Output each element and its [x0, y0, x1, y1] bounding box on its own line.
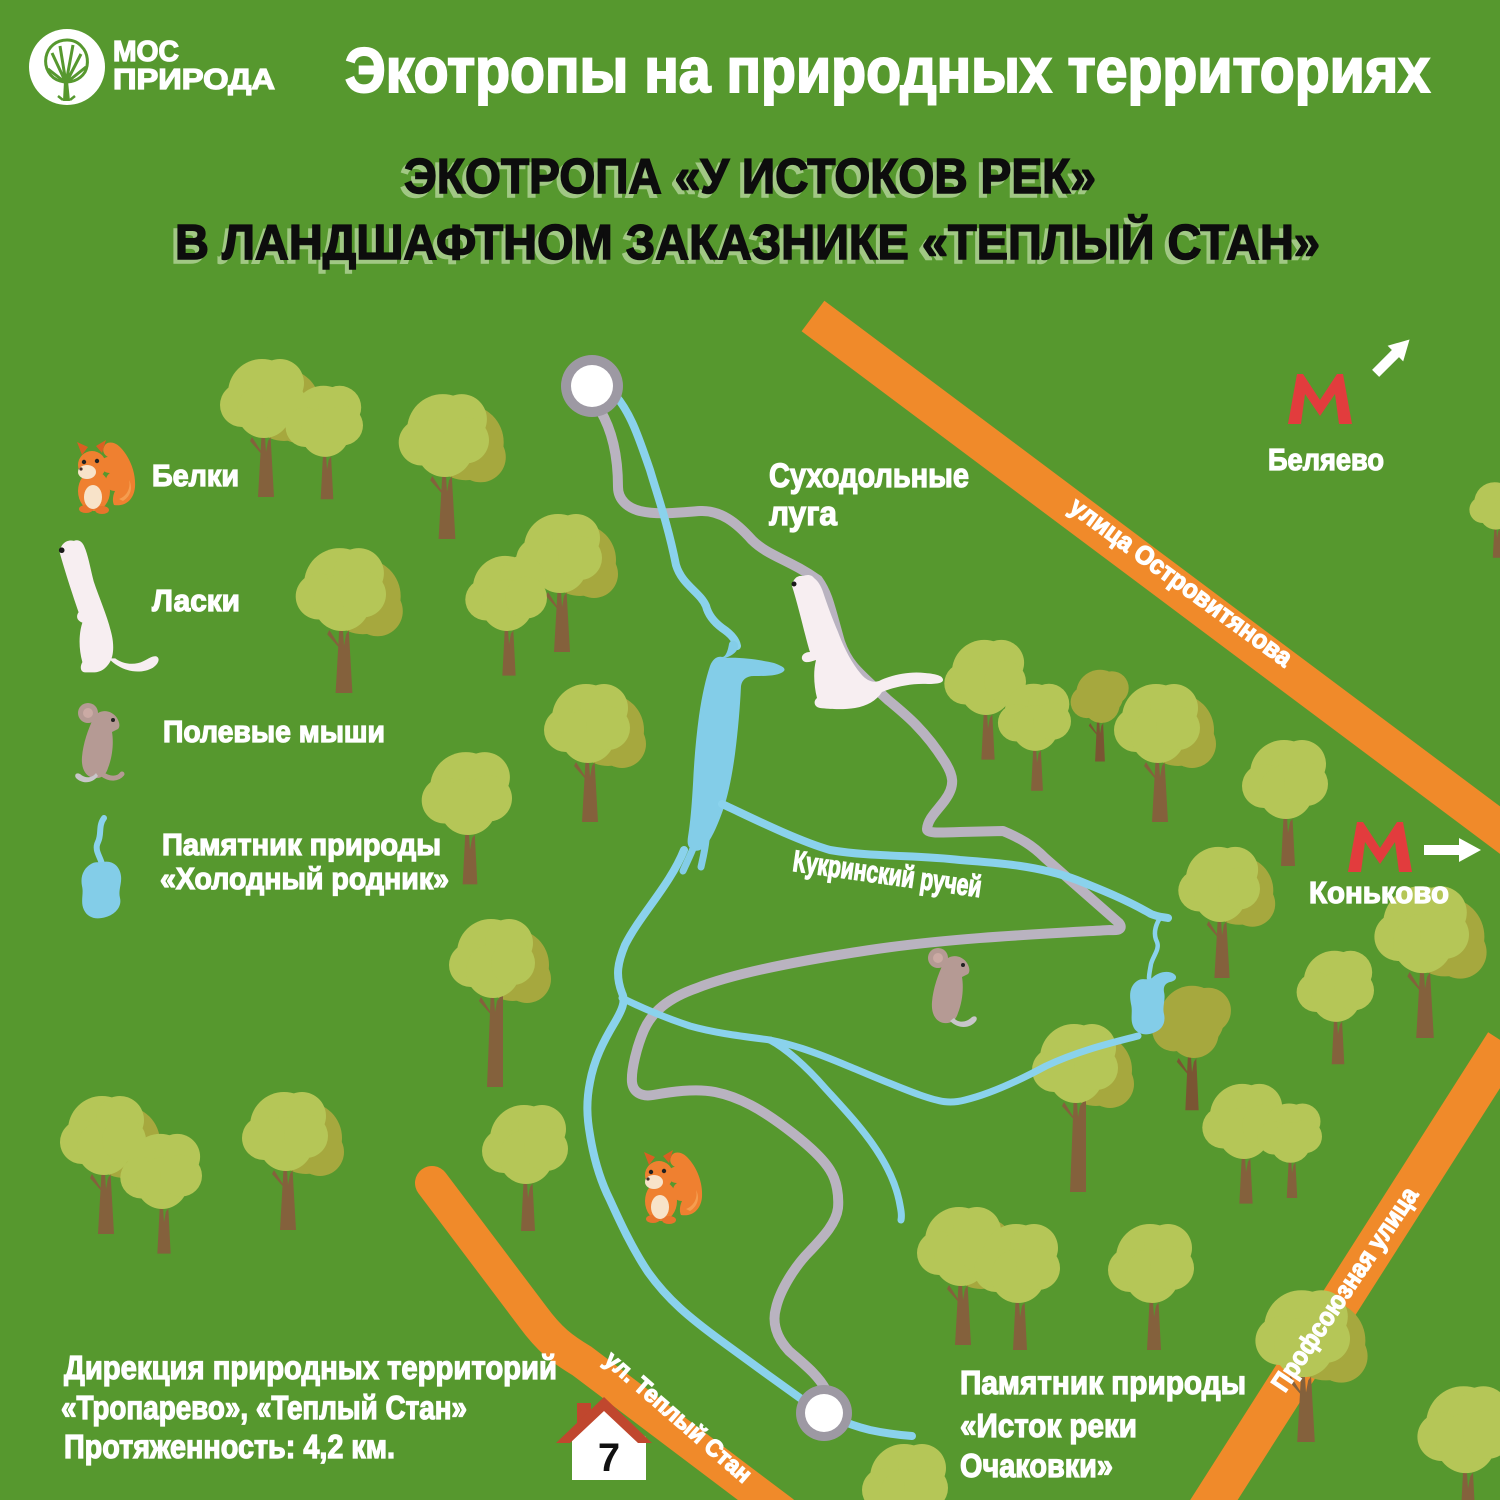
- svg-text:Ласки: Ласки: [152, 583, 240, 618]
- svg-text:Беляево: Беляево: [1268, 442, 1384, 477]
- svg-text:«Тропарево», «Теплый Стан»: «Тропарево», «Теплый Стан»: [61, 1389, 467, 1426]
- svg-text:Памятник природы: Памятник природы: [960, 1364, 1246, 1401]
- svg-text:ЭКОТРОПА «У ИСТОКОВ РЕК»: ЭКОТРОПА «У ИСТОКОВ РЕК»: [404, 150, 1096, 204]
- svg-text:«Холодный родник»: «Холодный родник»: [160, 861, 449, 896]
- svg-text:Экотропы на природных территор: Экотропы на природных территориях: [345, 36, 1430, 106]
- svg-text:ПРИРОДА: ПРИРОДА: [113, 64, 275, 96]
- svg-text:Протяженность: 4,2 км.: Протяженность: 4,2 км.: [64, 1428, 395, 1465]
- svg-text:7: 7: [598, 1436, 620, 1480]
- svg-text:«Исток реки: «Исток реки: [960, 1407, 1137, 1444]
- svg-text:Суходольные: Суходольные: [769, 457, 969, 495]
- svg-text:В ЛАНДШАФТНОМ ЗАКАЗНИКЕ «ТЕПЛЫ: В ЛАНДШАФТНОМ ЗАКАЗНИКЕ «ТЕПЛЫЙ СТАН»: [175, 215, 1320, 270]
- svg-text:Полевые мыши: Полевые мыши: [163, 714, 385, 749]
- svg-text:Белки: Белки: [152, 458, 239, 493]
- svg-text:луга: луга: [769, 495, 838, 533]
- svg-text:Коньково: Коньково: [1309, 875, 1449, 910]
- svg-text:Очаковки»: Очаковки»: [960, 1447, 1113, 1484]
- svg-text:Дирекция природных территорий: Дирекция природных территорий: [64, 1349, 557, 1386]
- svg-text:Памятник природы: Памятник природы: [162, 827, 441, 862]
